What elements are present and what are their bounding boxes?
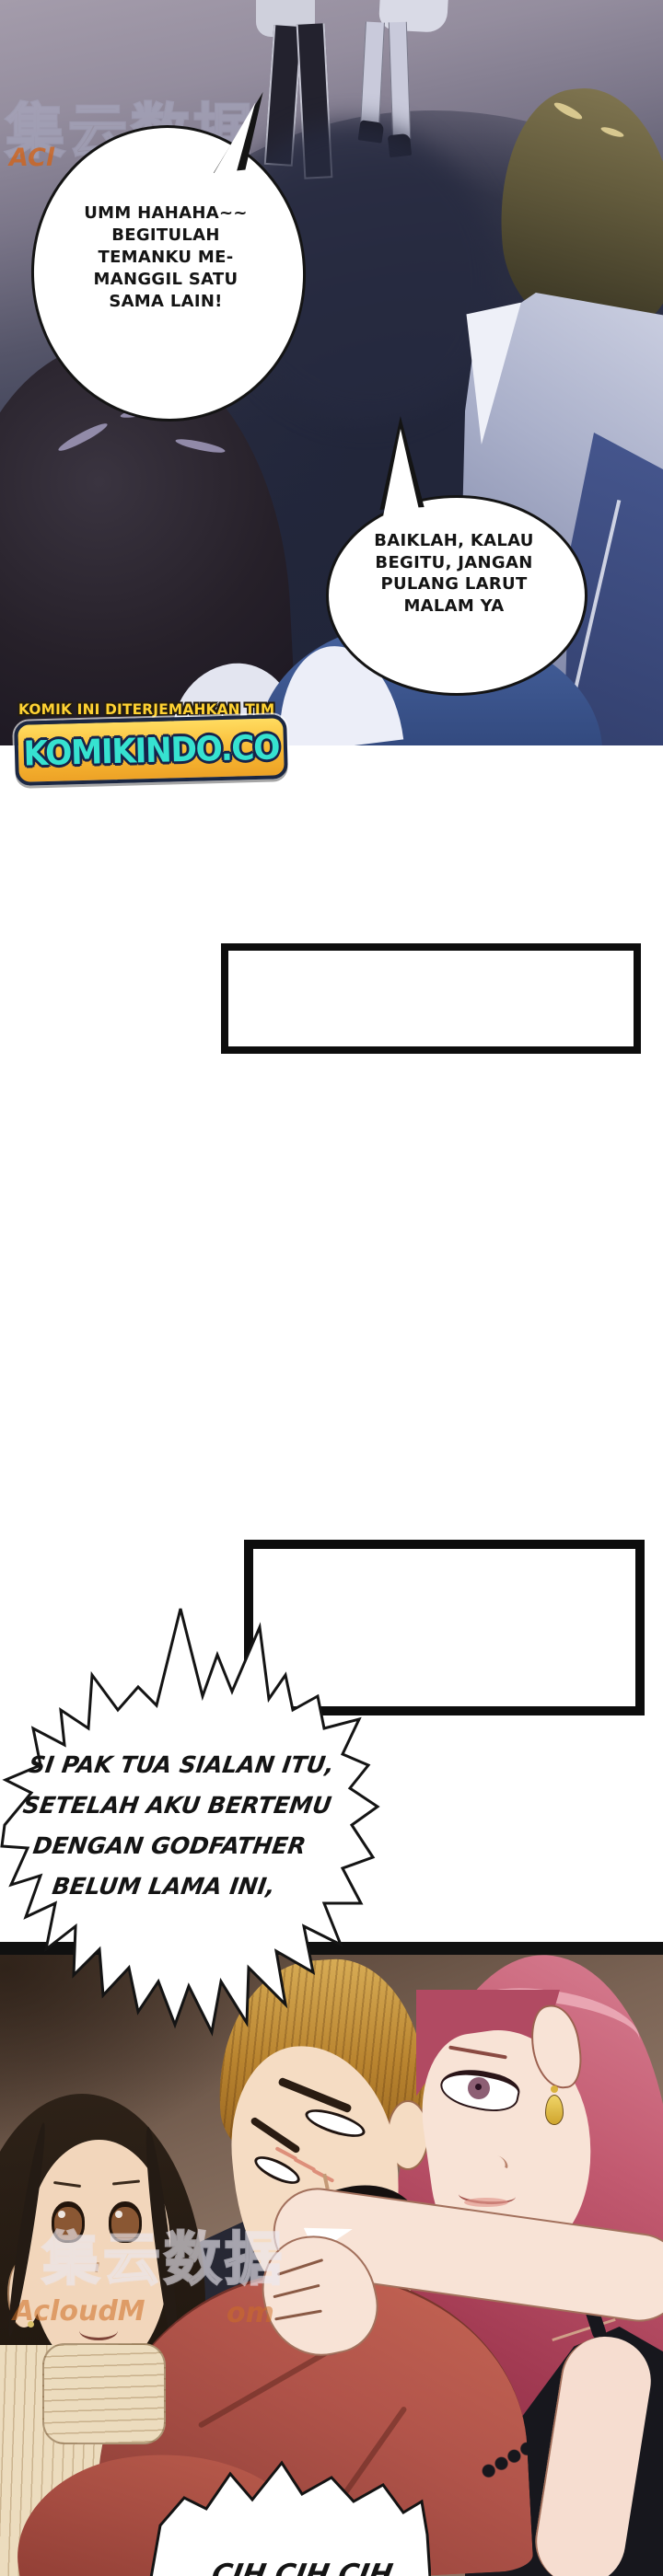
scoff-text: CIH CIH CIH — [198, 2559, 406, 2576]
watermark-cjk: 集云数据 — [42, 2212, 285, 2295]
walking-woman-leg — [360, 22, 385, 127]
iris — [468, 2077, 490, 2099]
panel-street-scene: 集云数据 ACl UMM HAHAHA~~ BEGITULAH TEMANKU … — [0, 0, 663, 745]
speech-text-reply: BAIKLAH, KALAU BEGITU, JANGAN PULANG LAR… — [339, 530, 569, 617]
shout-text: SI PAK TUA SIALAN ITU, SETELAH AKU BERTE… — [9, 1745, 336, 1907]
earring-stud — [551, 2085, 558, 2093]
turtleneck-collar — [42, 2343, 166, 2444]
earring-drop — [545, 2095, 564, 2125]
speech-text-laugh: UMM HAHAHA~~ BEGITULAH TEMANKU ME- MANGG… — [51, 202, 281, 313]
watermark-latin: om — [227, 2297, 274, 2329]
comic-page: 集云数据 ACl UMM HAHAHA~~ BEGITULAH TEMANKU … — [0, 0, 663, 2576]
translator-site-plate: KOMIKINDO.CO — [14, 714, 288, 786]
translator-site-logo: KOMIKINDO.CO — [23, 727, 280, 773]
lip-tint — [464, 2198, 508, 2207]
empty-caption-box-1 — [221, 943, 641, 1054]
watermark-latin: AcloudM — [13, 2295, 145, 2328]
walking-woman-leg — [389, 22, 411, 140]
watermark-latin: ACl — [9, 144, 54, 172]
